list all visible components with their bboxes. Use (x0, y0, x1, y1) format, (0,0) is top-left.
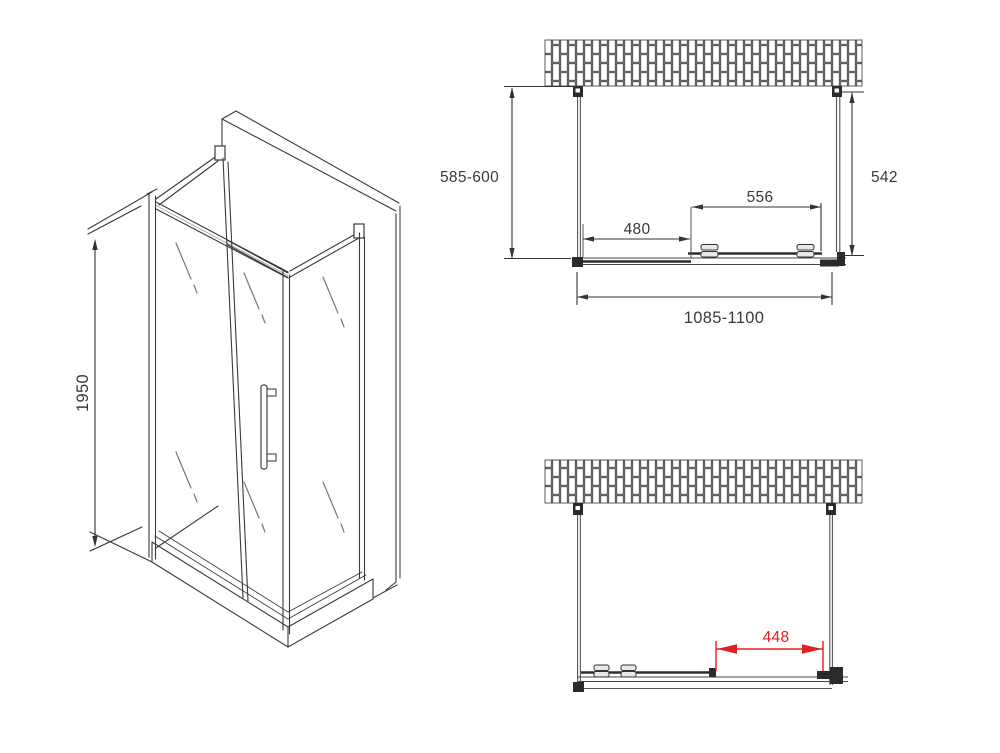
technical-drawing-canvas: 1950 (0, 0, 1000, 753)
drawing-svg: 1950 (0, 0, 1000, 753)
side-panels-plan (578, 97, 840, 257)
dim-inner-depth (838, 92, 864, 256)
dim-side-depth-label: 585-600 (440, 169, 499, 186)
corner-block-left-front (573, 682, 584, 692)
door-divider (223, 158, 248, 601)
bracket-right-hole (835, 89, 840, 93)
corner-bracket-right (820, 260, 839, 267)
roller (594, 665, 609, 671)
front-view: 448 (545, 460, 862, 692)
roller (701, 252, 718, 258)
wall-hatch-front-view (545, 460, 862, 503)
dim-door-width-label: 556 (747, 189, 774, 206)
handle-bar (261, 385, 267, 469)
corner-bracket-right-front (817, 671, 832, 679)
front-right-post (283, 271, 290, 634)
roller (621, 672, 636, 678)
side-panels-front (578, 515, 833, 688)
glass-shine-marks (176, 243, 344, 532)
left-wall-profile (147, 189, 157, 559)
dim-total-width (577, 272, 832, 305)
bracket-right-front-hole (829, 506, 834, 510)
dim-side-depth (504, 87, 577, 260)
right-side-panel (290, 224, 365, 580)
bracket-left-hole (576, 89, 581, 93)
wall-brackets (573, 86, 842, 97)
wall-brackets-front (573, 503, 836, 515)
dim-inner-depth-label: 542 (871, 169, 898, 186)
front-header-bar (156, 202, 288, 278)
roller (701, 245, 718, 251)
shower-tray (152, 531, 373, 647)
roller (797, 245, 814, 251)
roller (594, 672, 609, 678)
iso-view: 1950 (74, 111, 400, 647)
corner-block-right-front (830, 667, 843, 684)
dim-height-1950 (88, 206, 142, 551)
corner-block-left (572, 257, 583, 267)
dim-fixed-width-label: 480 (624, 221, 651, 238)
roller (797, 252, 814, 258)
door-rollers-front (594, 665, 636, 677)
door-handle (261, 385, 276, 469)
door-end-cap (709, 668, 716, 677)
bracket-left-front-hole (576, 506, 581, 510)
dim-adjustment-label: 448 (763, 629, 790, 646)
dim-total-width-label: 1085-1100 (684, 309, 764, 327)
top-view: 585-600 542 556 480 1 (440, 40, 898, 327)
roller (621, 665, 636, 671)
back-wall (222, 111, 400, 590)
door-rollers-plan (701, 245, 814, 258)
dim-height-label: 1950 (74, 374, 92, 412)
dim-door-width (692, 203, 821, 251)
wall-hatch-top-view (545, 40, 862, 86)
